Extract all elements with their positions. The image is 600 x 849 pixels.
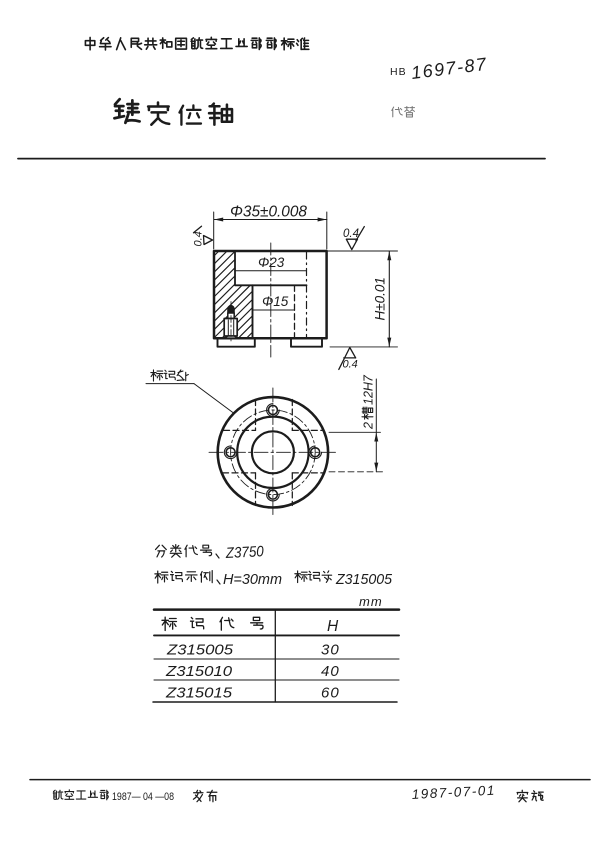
svg-text:mm: mm [359,594,383,609]
svg-text:Z315005: Z315005 [335,571,393,588]
svg-text:Z315010: Z315010 [165,663,233,680]
svg-text:60: 60 [321,685,340,702]
svg-text:H±0.01: H±0.01 [373,277,388,320]
svg-text:0.4: 0.4 [343,228,359,240]
svg-text:Z315005: Z315005 [166,642,234,659]
svg-text:Z3750: Z3750 [224,543,264,562]
svg-text:12H7: 12H7 [362,374,376,405]
svg-text:0.4: 0.4 [343,359,358,371]
svg-text:2: 2 [362,422,376,430]
svg-text:0.4: 0.4 [193,231,205,246]
svg-text:Z315015: Z315015 [165,685,233,702]
svg-text:40: 40 [321,663,340,680]
svg-text:Φ15: Φ15 [262,294,289,309]
svg-text:HB: HB [390,66,407,78]
svg-text:30: 30 [321,642,340,659]
svg-text:H: H [327,618,339,635]
svg-text:1987— 04 —08: 1987— 04 —08 [112,791,174,803]
svg-text:Φ23: Φ23 [258,255,285,270]
svg-text:H=30mm: H=30mm [223,572,282,588]
svg-text:1987-07-01: 1987-07-01 [411,783,496,802]
svg-text:1697-87: 1697-87 [410,54,488,83]
svg-text:Φ35±0.008: Φ35±0.008 [230,204,307,221]
